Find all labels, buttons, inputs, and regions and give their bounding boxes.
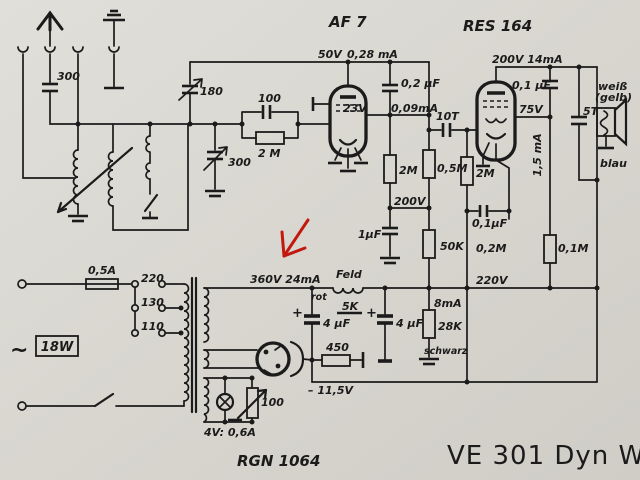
label-tap-110: 110 xyxy=(141,320,164,333)
label-2m-a: 2M xyxy=(399,164,418,177)
label-028ma: 0,28 mA xyxy=(347,48,398,61)
label-05m: 0,5M xyxy=(437,162,467,175)
label-200v: 200V xyxy=(394,195,427,208)
label-220v: 220V xyxy=(476,274,509,287)
label-18w: 18W xyxy=(41,340,74,355)
label-450: 450 xyxy=(325,341,349,354)
label-5k: 5K xyxy=(342,300,360,313)
label-50k: 50K xyxy=(440,240,465,253)
label-5t: 5T xyxy=(583,105,600,118)
label-feld: Feld xyxy=(336,268,362,281)
label-23v: 23V xyxy=(343,102,368,115)
label-01uf-a: 0,1 µF xyxy=(512,79,551,92)
label-300-antenna: 300 xyxy=(57,70,80,83)
label-360v-24ma: 360V 24mA xyxy=(250,273,321,286)
label-plus-b: + xyxy=(366,306,377,321)
page-title: VE 301 Dyn W xyxy=(447,441,640,471)
label-ac-symbol: ~ xyxy=(10,338,28,363)
label-01m: 0,1M xyxy=(558,242,588,255)
label-tap-130: 130 xyxy=(141,296,164,309)
label-10t: 10T xyxy=(436,110,460,123)
label-gelb: (gelb) xyxy=(595,91,632,104)
label-009ma: 0,09mA xyxy=(391,102,438,115)
label-28k: 28K xyxy=(438,320,463,333)
label-8ma: 8mA xyxy=(434,297,462,310)
label-15ma: 1,5 mA xyxy=(531,133,544,176)
tube-res164-label: RES 164 xyxy=(463,17,532,35)
label-02m: 0,2M xyxy=(476,242,506,255)
label-schwarz: schwarz xyxy=(424,346,468,357)
label-50v: 50V xyxy=(318,48,343,61)
label-200v-14ma: 200V 14mA xyxy=(492,53,563,66)
label-02uf: 0,2 µF xyxy=(401,77,440,90)
label-300-tuning: 300 xyxy=(228,156,251,169)
label-fuse-05a: 0,5A xyxy=(88,264,116,277)
label-180: 180 xyxy=(200,85,223,98)
label-4uf-a: 4 µF xyxy=(322,317,351,330)
label-01uf-b: 0,1µF xyxy=(472,217,508,230)
circuit-schematic: AF 7 RES 164 50V 0,28 mA 0,2 µF 23V 0,09… xyxy=(0,0,640,480)
label-pot-100: 100 xyxy=(261,396,284,409)
tube-rgn1064-label: RGN 1064 xyxy=(237,452,320,470)
label-minus-115v: – 11,5V xyxy=(308,384,354,397)
label-1uf: 1µF xyxy=(358,228,382,241)
label-2m-gridleak-af7: 2 M xyxy=(258,147,280,160)
label-4uf-b: 4 µF xyxy=(395,317,424,330)
label-plus-a: + xyxy=(292,306,303,321)
label-tap-220: 220 xyxy=(141,272,164,285)
label-100-gridcap: 100 xyxy=(258,92,281,105)
schematic-page: AF 7 RES 164 50V 0,28 mA 0,2 µF 23V 0,09… xyxy=(0,0,640,480)
label-heater-4v: 4V: 0,6A xyxy=(203,426,256,439)
tube-af7-label: AF 7 xyxy=(328,13,367,31)
label-blau: blau xyxy=(600,157,627,170)
label-75v: 75V xyxy=(519,103,544,116)
label-rot: rot xyxy=(311,292,327,303)
label-2m-b: 2M xyxy=(476,167,495,180)
